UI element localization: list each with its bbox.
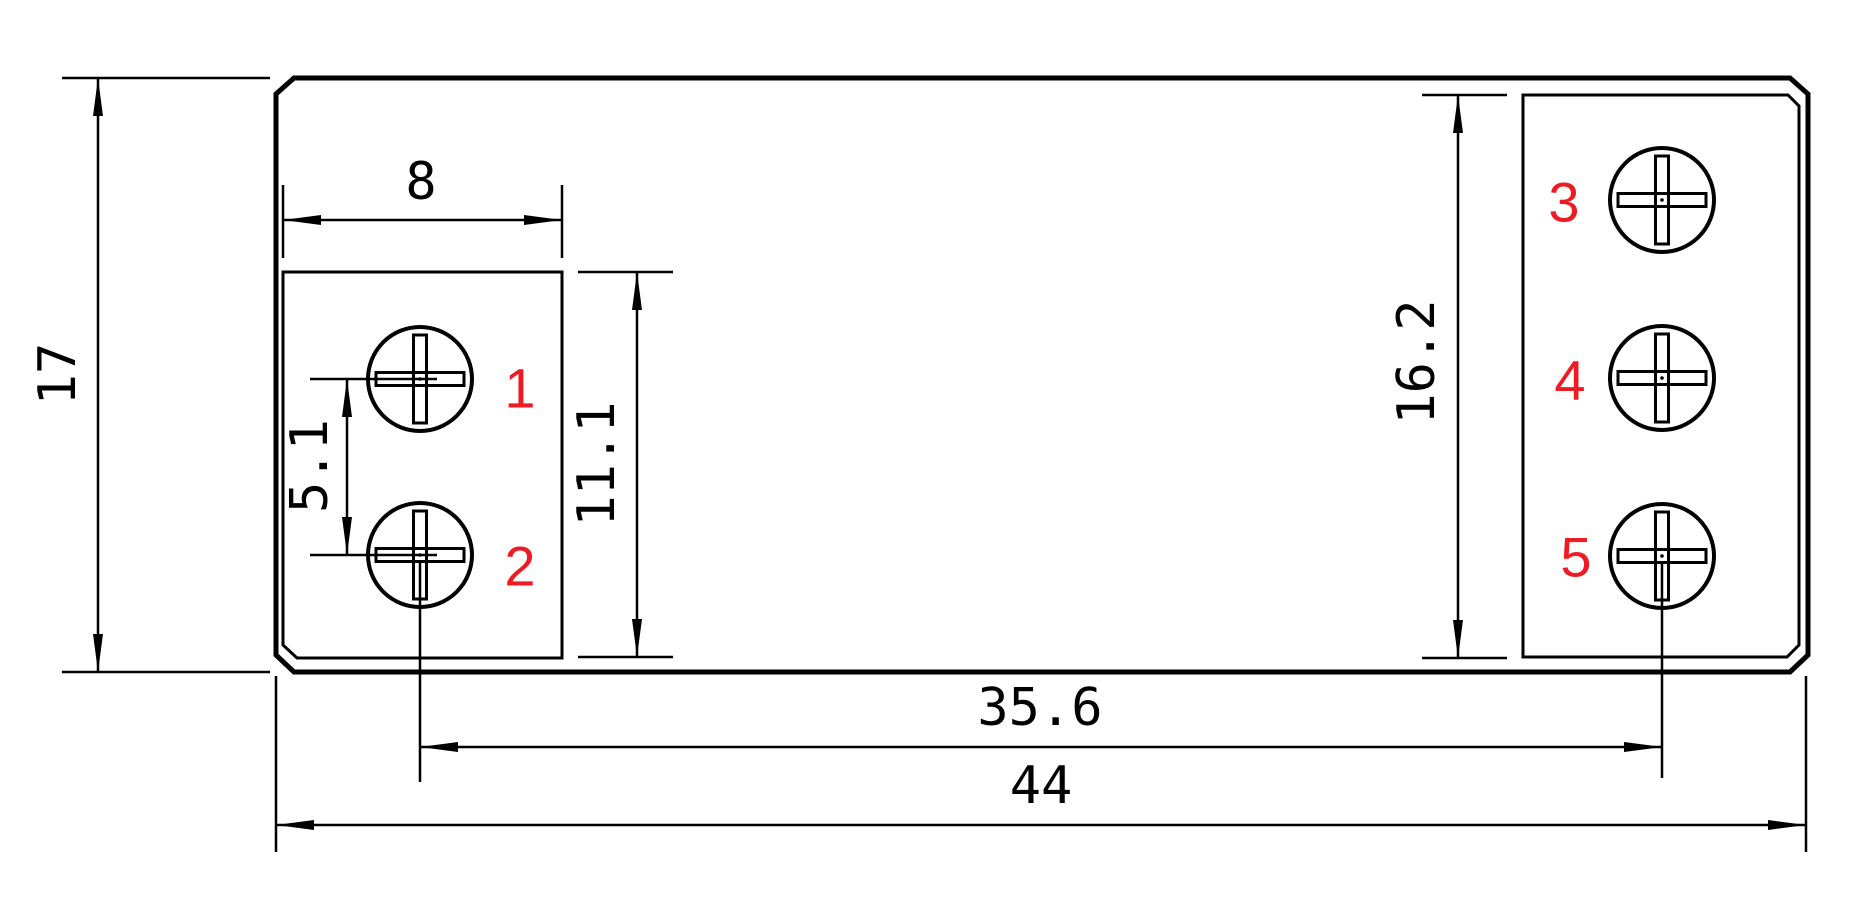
terminal-4-screw-icon <box>1610 326 1714 430</box>
dimension-text-left-block-height: 11.1 <box>567 401 627 526</box>
dimension-text-left-block-width: 8 <box>405 152 436 212</box>
terminal-3-screw-icon <box>1610 148 1714 252</box>
dimension-text-right-block-height: 16.2 <box>1387 299 1447 424</box>
dimension-text-overall-height: 17 <box>28 343 88 406</box>
terminal-1-label: 1 <box>504 357 535 420</box>
technical-drawing-page: 1 2 3 4 5 17 8 5.1 11.1 16.2 <box>0 0 1866 901</box>
dimension-terminal-span: 35.6 <box>420 678 1662 747</box>
dimension-text-terminal-span: 35.6 <box>977 678 1102 738</box>
terminal-2-label: 2 <box>504 535 535 598</box>
terminal-4-label: 4 <box>1554 349 1585 412</box>
terminal-5-label: 5 <box>1560 526 1591 589</box>
dimension-text-overall-width: 44 <box>1010 756 1073 816</box>
dimension-overall-height: 17 <box>28 78 270 672</box>
dimension-drawing-canvas: 1 2 3 4 5 17 8 5.1 11.1 16.2 <box>0 0 1866 901</box>
dimension-text-left-pin-pitch: 5.1 <box>280 419 340 513</box>
terminal-3-label: 3 <box>1548 171 1579 234</box>
